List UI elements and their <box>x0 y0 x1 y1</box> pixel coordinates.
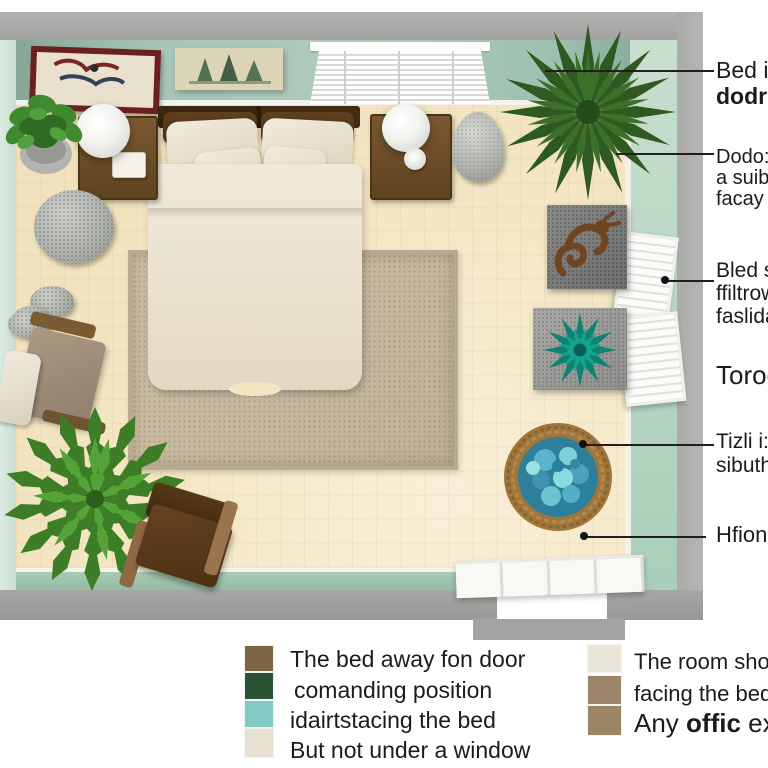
callout-floor: Hfiono <box>716 524 768 546</box>
leader-dot-4 <box>579 440 587 448</box>
leader-dot-3 <box>661 276 669 284</box>
outer-wall-right <box>677 12 703 620</box>
wall-shutter-lower <box>617 311 686 407</box>
legend-swatch-bed <box>245 646 273 671</box>
callout-torodo: Torodo <box>716 362 768 388</box>
nightstand-book <box>112 152 146 178</box>
palm-plant <box>498 22 678 202</box>
door-vestibule-wall <box>473 618 625 640</box>
blinds-slats <box>310 51 490 104</box>
legend-text-office: Any offic exqu <box>634 708 768 739</box>
callout-text: Bed in <box>716 57 768 83</box>
legend-text-room: The room should <box>634 649 768 675</box>
leader-line-3 <box>666 280 714 282</box>
blinds-rail <box>310 42 490 51</box>
legend-swatch-facing-bed <box>588 676 621 704</box>
callout-text: faslida <box>716 305 768 328</box>
callout-text: a suib <box>716 168 768 189</box>
legend-swatch-room <box>588 645 621 672</box>
bed-duvet <box>148 164 362 390</box>
lamp-right <box>382 104 430 152</box>
callout-text: sibuth <box>716 454 768 478</box>
callout-dragon-art: Bled s ffiltrow faslida <box>716 259 768 328</box>
legend-text-facing: idairtstacing the bed <box>290 707 496 734</box>
legend-swatch-window <box>245 729 273 757</box>
callout-text: Bled s <box>716 259 768 282</box>
window-blinds <box>310 42 490 104</box>
leader-dot-5 <box>580 532 588 540</box>
leader-line-4 <box>584 444 714 446</box>
legend-swatch-commanding <box>245 673 273 699</box>
nightstand-cup <box>404 148 426 170</box>
callout-text: dodro <box>716 83 768 109</box>
leader-line-5 <box>585 536 706 538</box>
callout-basket: Tizli i: sibuth <box>716 430 768 478</box>
pebble-basket <box>503 422 613 532</box>
legend-text-window: But not under a window <box>290 737 530 764</box>
callout-bed-position: Bed in dodro <box>716 57 768 109</box>
legend-text-bed: The bed away fon door <box>290 646 525 673</box>
callout-text: facay <box>716 189 768 210</box>
potted-plant <box>2 88 94 180</box>
callout-text: Dodo: <box>716 147 768 168</box>
leader-line-1 <box>545 70 714 72</box>
door-leaf <box>455 555 644 599</box>
callout-text: Hfiono <box>716 524 768 546</box>
legend-text-facing-bed: facing the bed, <box>634 681 768 707</box>
callout-text: ffiltrow <box>716 282 768 305</box>
callout-text: Torodo <box>716 362 768 388</box>
zen-stone-large <box>34 190 114 264</box>
callout-text: Tizli i: <box>716 430 768 454</box>
dragon-art-tile <box>547 205 627 289</box>
pine-wall-art <box>175 48 283 90</box>
legend-swatch-facing <box>245 701 273 727</box>
legend-swatch-office <box>588 706 621 735</box>
feng-shui-bedroom-infographic: Bed in dodro Dodo: a suib facay Bled s f… <box>0 0 768 768</box>
callout-palm: Dodo: a suib facay <box>716 147 768 210</box>
leader-line-2 <box>616 153 714 155</box>
legend-text-commanding: comanding position <box>294 677 492 704</box>
succulent-mat <box>533 308 627 390</box>
